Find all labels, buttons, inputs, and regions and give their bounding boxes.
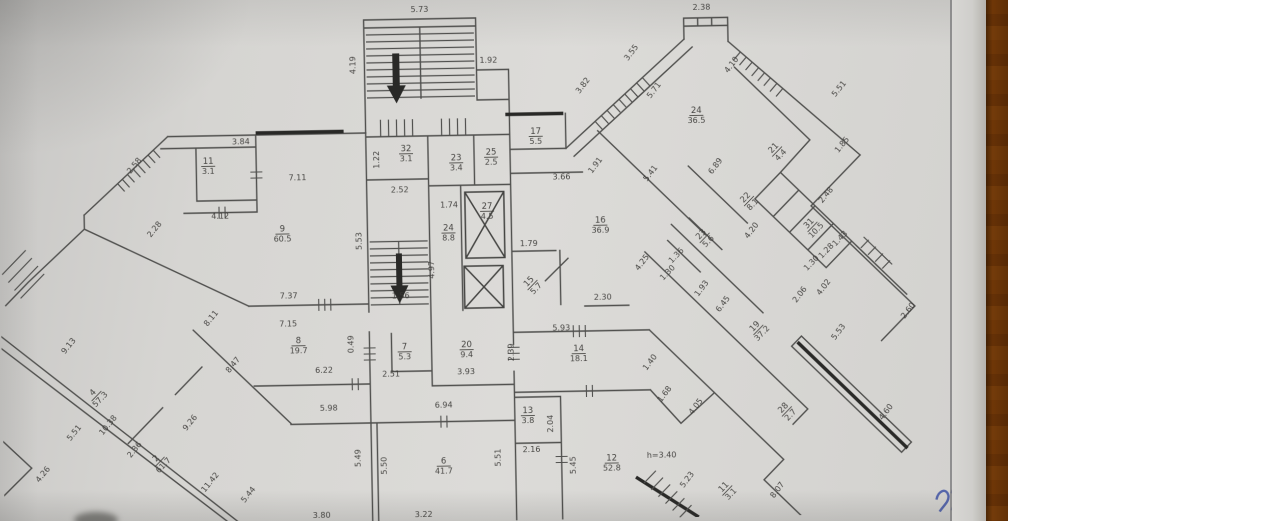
room-number: 16 xyxy=(595,216,606,226)
room-area: 3.1 xyxy=(202,167,215,176)
shadow-blob xyxy=(74,512,118,521)
dimension-label: 6.89 xyxy=(706,156,724,176)
room-number: 24 xyxy=(443,223,454,233)
dimension-label: 1.43 xyxy=(830,229,849,248)
dimension-label: 5.41 xyxy=(642,163,660,183)
dimension-label: 2.48 xyxy=(817,185,835,205)
dimension-label: 1.93 xyxy=(693,279,711,299)
dimension-label: 2.28 xyxy=(145,220,163,240)
room-area: 3.4 xyxy=(450,163,463,172)
dimension-label: 2.04 xyxy=(546,415,555,433)
dimension-label: 3.66 xyxy=(552,172,570,181)
room-number: 23 xyxy=(451,153,462,163)
dimension-label: 2.16 xyxy=(522,445,540,454)
wall-right-wing xyxy=(564,14,918,458)
room-number: 11 xyxy=(203,157,214,167)
room-area: 60.5 xyxy=(274,234,292,243)
dimension-label: 4.97 xyxy=(427,261,436,279)
dimension-labels: 5.734.191.922.383.823.555.714.105.511.85… xyxy=(25,0,920,521)
dimension-label: 1.56 xyxy=(392,291,410,300)
room-area: 3.1 xyxy=(400,154,413,163)
room-number: 8 xyxy=(296,336,302,346)
room-number: 20 xyxy=(461,340,472,350)
elevator-shaft-2 xyxy=(464,266,504,309)
room-label: 819.7 xyxy=(289,336,307,355)
dimension-label: 3.80 xyxy=(313,511,331,520)
room-label: 113.1 xyxy=(716,479,739,502)
room-label: 274.5 xyxy=(480,202,494,221)
dimension-label: 1.40 xyxy=(641,352,659,372)
room-number: 13 xyxy=(522,406,533,416)
dimension-label: 11.42 xyxy=(199,471,220,494)
dimension-label: 4.19 xyxy=(348,56,357,74)
room-number: 7 xyxy=(402,342,408,352)
room-label: 960.5 xyxy=(273,224,291,243)
dimension-label: 1.74 xyxy=(440,200,458,209)
dimension-label: 2.52 xyxy=(391,185,409,194)
room-number: 24 xyxy=(691,106,702,116)
dimension-label: 5.50 xyxy=(380,457,389,475)
room-area: 41.7 xyxy=(435,466,453,475)
room-area: 3.8 xyxy=(521,416,534,425)
dimension-label: 4.26 xyxy=(34,465,52,485)
dimension-label: 2.06 xyxy=(791,285,809,305)
dimension-label: 3.82 xyxy=(574,76,592,96)
dimension-label: 1.68 xyxy=(656,384,674,404)
room-number: 27 xyxy=(482,202,493,212)
room-area: 52.8 xyxy=(603,463,621,472)
dimension-label: 5.53 xyxy=(354,232,363,250)
room-label: 1252.8 xyxy=(603,453,621,472)
floor-plan-photo: 5.734.191.922.383.823.555.714.105.511.85… xyxy=(0,0,1280,521)
dimension-label: 2.38 xyxy=(692,3,710,12)
room-area: 5.5 xyxy=(529,137,542,146)
room-label: 252.5 xyxy=(484,148,498,167)
dimension-label: 5.93 xyxy=(552,323,570,332)
room-label: 209.4 xyxy=(459,340,473,359)
dimension-label: 5.49 xyxy=(353,449,362,467)
room-label: 113.1 xyxy=(201,157,215,176)
room-number: 12 xyxy=(606,453,617,463)
dimension-label: 2.58 xyxy=(125,156,143,176)
room-number: 6 xyxy=(441,457,447,467)
dimension-label: 8.11 xyxy=(202,309,220,329)
room-label: 155.7 xyxy=(521,273,544,296)
note-labels: h=3.40 xyxy=(647,450,677,460)
dimension-label: 8.47 xyxy=(224,355,242,375)
room-area: 9.4 xyxy=(460,350,473,359)
room-label: 2436.5 xyxy=(687,106,705,125)
dimension-label: 1.79 xyxy=(520,239,538,248)
dimension-label: 3.84 xyxy=(232,137,250,146)
room-label: 233.4 xyxy=(449,153,463,172)
dimension-label: 3.55 xyxy=(622,43,640,63)
room-label: 248.8 xyxy=(441,223,455,242)
room-number: 14 xyxy=(573,344,584,354)
room-area: 36.5 xyxy=(687,116,705,125)
room-label: 214.4 xyxy=(765,140,788,163)
dimension-label: 4.60 xyxy=(877,402,895,422)
dimension-label: 5.98 xyxy=(320,404,338,413)
room-label: 235.6 xyxy=(693,226,716,249)
dimension-label: 7.15 xyxy=(279,319,297,328)
wall-left-wing xyxy=(0,133,373,521)
dimension-label: 6.94 xyxy=(435,400,453,409)
dimension-label: 5.73 xyxy=(410,5,428,14)
room-area: 8.8 xyxy=(442,233,455,242)
dimension-label: 5.51 xyxy=(65,423,83,443)
dimension-label: 3.93 xyxy=(457,367,475,376)
dimension-label: 4.10 xyxy=(723,55,741,75)
room-area: 2.5 xyxy=(485,158,498,167)
room-label: 1937.2 xyxy=(745,317,771,343)
left-edge-hatch xyxy=(2,250,45,299)
ceiling-height-note: h=3.40 xyxy=(647,450,677,460)
dimension-label: 5.45 xyxy=(569,456,578,474)
room-label: 323.1 xyxy=(399,144,413,163)
dimension-label: 9.13 xyxy=(59,336,77,356)
dimension-label: 4.02 xyxy=(815,277,833,297)
room-label: 75.3 xyxy=(397,342,411,361)
room-area: 19.7 xyxy=(290,346,308,355)
room-number: 9 xyxy=(280,225,286,235)
room-label: 282.7 xyxy=(775,400,798,423)
stair-direction-arrow xyxy=(386,53,406,103)
room-area: 5.3 xyxy=(398,352,411,361)
dimension-label: 2.30 xyxy=(594,293,612,302)
floor-plan-drawing: 5.734.191.922.383.823.555.714.105.511.85… xyxy=(0,0,958,521)
dimension-label: 1.22 xyxy=(372,151,381,169)
dimension-label: 5.51 xyxy=(830,79,848,99)
dimension-label: 6.22 xyxy=(315,366,333,375)
dimension-label: 4.12 xyxy=(211,212,229,221)
dimension-label: 2.51 xyxy=(382,369,400,378)
dimension-label: 6.45 xyxy=(714,294,732,314)
table-edge xyxy=(986,0,1008,521)
dimension-label: 5.23 xyxy=(678,470,696,490)
paper-sheet: 5.734.191.922.383.823.555.714.105.511.85… xyxy=(0,0,953,521)
door-ticks xyxy=(218,166,593,469)
room-label: 457.3 xyxy=(83,383,109,409)
dimension-label: 5.44 xyxy=(239,485,257,505)
room-label: 175.5 xyxy=(529,127,543,146)
room-label: 133.8 xyxy=(521,406,535,425)
room-number: 25 xyxy=(486,148,497,158)
dimension-label: 4.20 xyxy=(743,221,761,241)
room-area: 18.1 xyxy=(570,354,588,363)
background-surface xyxy=(1008,0,1280,521)
room-number: 17 xyxy=(530,127,541,137)
dimension-label: 1.91 xyxy=(586,155,604,175)
dimension-label: 7.11 xyxy=(288,173,306,182)
dimension-label: 4.05 xyxy=(687,397,705,417)
staircase-left xyxy=(117,150,161,192)
dimension-label: 3.22 xyxy=(415,510,433,519)
dimension-label: 9.26 xyxy=(181,413,199,433)
dimension-label: 5.53 xyxy=(829,322,847,342)
dimension-label: 1.92 xyxy=(479,56,497,65)
dimension-label: 7.37 xyxy=(280,291,298,300)
room-label: 1636.9 xyxy=(591,216,609,235)
dimension-label: 0.49 xyxy=(346,335,355,353)
dimension-label: 5.51 xyxy=(493,449,502,467)
room-label: 228.1 xyxy=(737,189,760,212)
room-area: 36.9 xyxy=(591,226,609,235)
room-number: 32 xyxy=(400,144,411,154)
room-label: 641.7 xyxy=(435,456,453,475)
dimension-label: 8.07 xyxy=(768,480,786,500)
paper-margin xyxy=(952,0,986,521)
room-area: 4.5 xyxy=(481,212,494,221)
dimension-label: 2.60 xyxy=(899,301,917,321)
room-label: 1418.1 xyxy=(570,344,588,363)
dimension-label: 2.39 xyxy=(507,343,516,361)
